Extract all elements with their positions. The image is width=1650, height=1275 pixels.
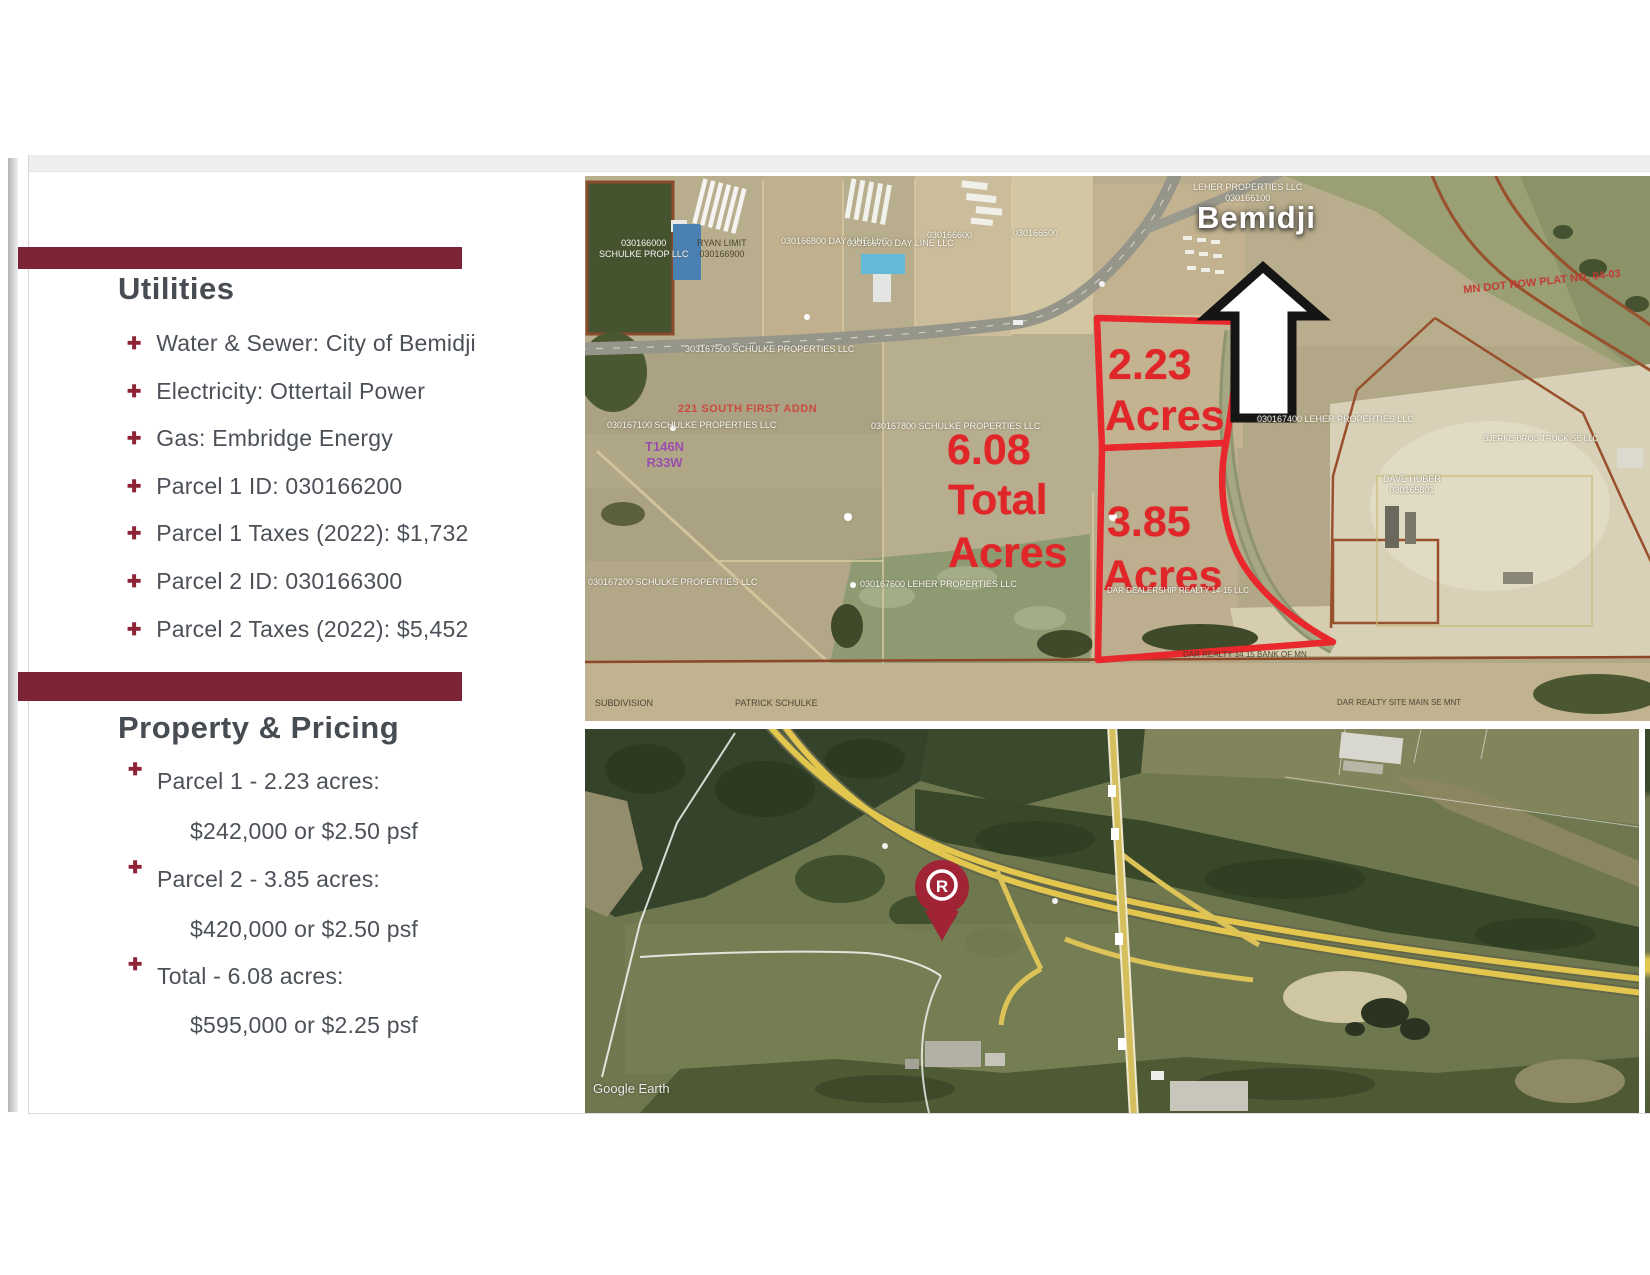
- plus-bullet-icon: ✚: [127, 478, 141, 495]
- parcel1-acreage-label: 2.23: [1108, 344, 1192, 387]
- utilities-item: ✚ Electricity: Ottertail Power: [127, 378, 425, 405]
- plat-label: 030167400 LEHER PROPERTIES LLC: [1257, 414, 1414, 425]
- utilities-item-text: Parcel 1 Taxes (2022): $1,732: [156, 520, 468, 547]
- total-acreage-label: 6.08: [947, 429, 1031, 472]
- plat-label: PATRICK SCHULKE: [735, 698, 818, 709]
- pricing-item-label: Parcel 1 - 2.23 acres:: [157, 768, 380, 795]
- utilities-item: ✚ Parcel 2 Taxes (2022): $5,452: [127, 616, 469, 643]
- total-acreage-label: Total: [948, 479, 1048, 522]
- utilities-item-text: Gas: Embridge Energy: [156, 425, 393, 452]
- utilities-item: ✚ Water & Sewer: City of Bemidji: [127, 330, 476, 357]
- plus-bullet-icon: ✚: [127, 430, 141, 447]
- page-top-shade: [29, 155, 1650, 172]
- plat-label: SUBDIVISION: [595, 698, 653, 709]
- plus-bullet-icon: ✚: [127, 525, 141, 542]
- plat-label: 030166500: [1013, 228, 1058, 239]
- plat-label: DAR DEALERSHIP REALTY 14-15 LLC: [1107, 586, 1249, 596]
- plat-label: DAR REALTY SITE MAIN SE MNT: [1337, 698, 1461, 708]
- utilities-item-text: Electricity: Ottertail Power: [156, 378, 425, 405]
- plus-bullet-icon: ✚: [127, 621, 141, 638]
- plus-bullet-icon: ✚: [128, 956, 142, 973]
- pricing-item-price: $242,000 or $2.50 psf: [190, 818, 418, 845]
- plat-label: DAR REALTY 14 15 BANK OF MN: [1183, 650, 1307, 660]
- context-aerial-map: R Google Earth: [585, 729, 1639, 1113]
- plat-label: LEHER PROPERTIES LLC 030166100: [1193, 182, 1302, 204]
- utilities-item: ✚ Parcel 1 ID: 030166200: [127, 473, 402, 500]
- plat-label: BJERKE BROS TRUCK SE LLC: [1483, 434, 1598, 444]
- plat-label: 030167600 LEHER PROPERTIES LLC: [860, 579, 1017, 590]
- page-edge-strip: [8, 158, 18, 1112]
- total-acreage-label: Acres: [948, 532, 1068, 575]
- plat-label: 303167500 SCHULKE PROPERTIES LLC: [685, 344, 854, 355]
- parcel1-acreage-label: Acres: [1105, 395, 1225, 438]
- parcel2-acreage-label: 3.85: [1107, 501, 1191, 544]
- pricing-title: Property & Pricing: [118, 710, 399, 746]
- pricing-item-label: Parcel 2 - 3.85 acres:: [157, 866, 380, 893]
- accent-bar-top: [18, 247, 462, 269]
- plus-bullet-icon: ✚: [128, 761, 142, 778]
- context-map-image: R: [585, 729, 1639, 1113]
- plat-label: 030166000 SCHULKE PROP LLC: [599, 238, 688, 260]
- pricing-item-label: Total - 6.08 acres:: [157, 963, 344, 990]
- utilities-item: ✚ Parcel 2 ID: 030166300: [127, 568, 402, 595]
- parcel-aerial-map: 2.23 Acres 6.08 Total Acres 3.85 Acres B…: [585, 176, 1650, 721]
- plat-label: DAVE HUBER 030165801: [1383, 474, 1441, 496]
- utilities-item-text: Water & Sewer: City of Bemidji: [156, 330, 476, 357]
- pricing-item-price: $420,000 or $2.50 psf: [190, 916, 418, 943]
- plus-bullet-icon: ✚: [127, 335, 141, 352]
- utilities-title: Utilities: [118, 271, 234, 307]
- plat-label: 030167200 SCHULKE PROPERTIES LLC: [588, 577, 757, 588]
- plat-label: 030166600: [927, 230, 972, 241]
- utilities-item: ✚ Parcel 1 Taxes (2022): $1,732: [127, 520, 469, 547]
- city-label: Bemidji: [1197, 200, 1316, 236]
- flyer-screenshot: { "theme": { "accent": "#7d2536", "bulle…: [0, 0, 1650, 1275]
- plat-name-label: 221 SOUTH FIRST ADDN: [678, 403, 817, 416]
- plat-label: 030167800 SCHULKE PROPERTIES LLC: [871, 421, 1040, 432]
- plus-bullet-icon: ✚: [127, 573, 141, 590]
- accent-bar-middle: [18, 672, 462, 701]
- location-pin-letter: R: [936, 877, 948, 896]
- utilities-item-text: Parcel 2 Taxes (2022): $5,452: [156, 616, 468, 643]
- plat-label: RYAN LIMIT 030166900: [697, 238, 747, 260]
- google-earth-watermark: Google Earth: [593, 1081, 670, 1096]
- township-range-label: T146N R33W: [645, 439, 684, 470]
- plus-bullet-icon: ✚: [127, 383, 141, 400]
- plat-label: 030167100 SCHULKE PROPERTIES LLC: [607, 420, 776, 431]
- utilities-item-text: Parcel 2 ID: 030166300: [156, 568, 402, 595]
- pricing-item-price: $595,000 or $2.25 psf: [190, 1012, 418, 1039]
- utilities-item-text: Parcel 1 ID: 030166200: [156, 473, 402, 500]
- cropped-map-sliver: [1645, 729, 1650, 1113]
- utilities-item: ✚ Gas: Embridge Energy: [127, 425, 393, 452]
- plus-bullet-icon: ✚: [128, 859, 142, 876]
